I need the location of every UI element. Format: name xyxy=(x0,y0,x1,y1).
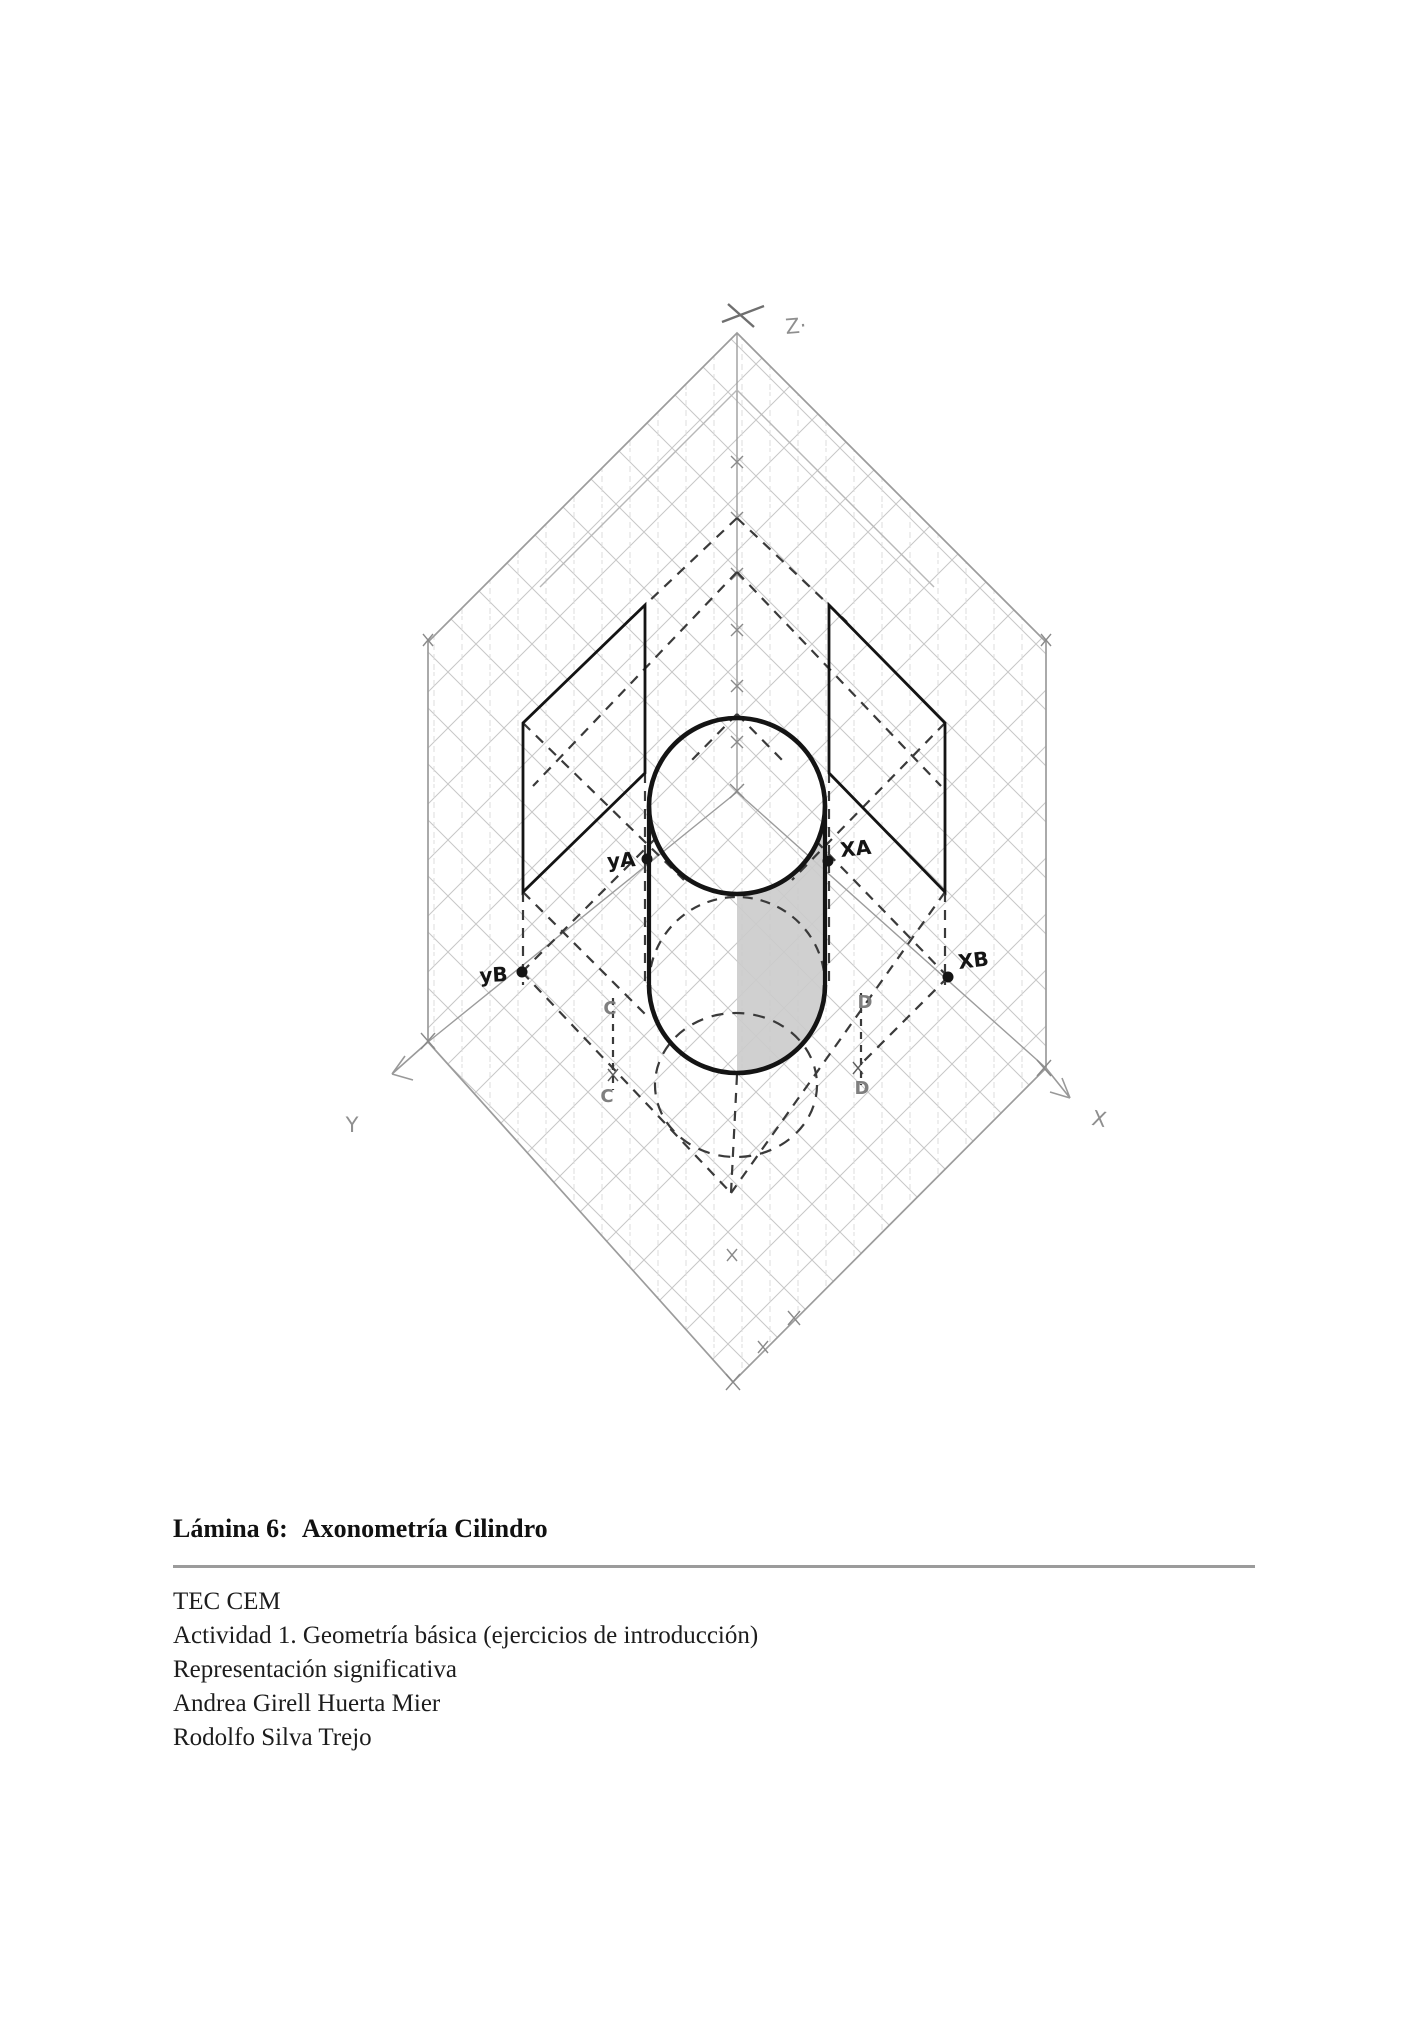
caption-title: Axonometría Cilindro xyxy=(302,1514,548,1543)
point-yb-dot xyxy=(517,967,528,978)
caption-divider xyxy=(173,1565,1255,1568)
footer-line-institution: TEC CEM xyxy=(173,1585,758,1619)
label-xb: XB xyxy=(957,946,990,974)
footer-line-activity: Actividad 1. Geometría básica (ejercicio… xyxy=(173,1619,758,1653)
label-c-lower: C xyxy=(600,1086,613,1107)
point-xb-dot xyxy=(943,972,954,983)
caption-label: Lámina 6: xyxy=(173,1514,288,1543)
footer-line-author-2: Rodolfo Silva Trejo xyxy=(173,1721,758,1755)
point-xa-dot xyxy=(823,856,834,867)
label-yb: yB xyxy=(479,962,508,987)
label-ya: yA xyxy=(606,847,637,873)
label-xa: XA xyxy=(839,835,873,862)
isometric-pencil-grid xyxy=(418,325,1058,1395)
label-d-lower: D xyxy=(855,1078,870,1099)
footer-text-block: TEC CEM Actividad 1. Geometría básica (e… xyxy=(173,1585,758,1755)
z-axis-label: Z· xyxy=(784,313,807,339)
x-axis-arrow xyxy=(1046,1068,1070,1098)
y-axis-label: Y xyxy=(345,1113,359,1137)
point-ya-dot xyxy=(642,854,653,865)
label-d-upper: D xyxy=(858,992,873,1013)
document-page: yA XA yB XB C C D D Z· Y X Lámina 6:Axon… xyxy=(0,0,1428,2028)
x-axis-label: X xyxy=(1090,1106,1108,1132)
label-c-upper: C xyxy=(603,998,616,1019)
footer-line-representation: Representación significativa xyxy=(173,1653,758,1687)
footer-line-author-1: Andrea Girell Huerta Mier xyxy=(173,1687,758,1721)
apex-x-mark xyxy=(722,304,764,327)
figure-caption: Lámina 6:Axonometría Cilindro xyxy=(173,1514,548,1544)
